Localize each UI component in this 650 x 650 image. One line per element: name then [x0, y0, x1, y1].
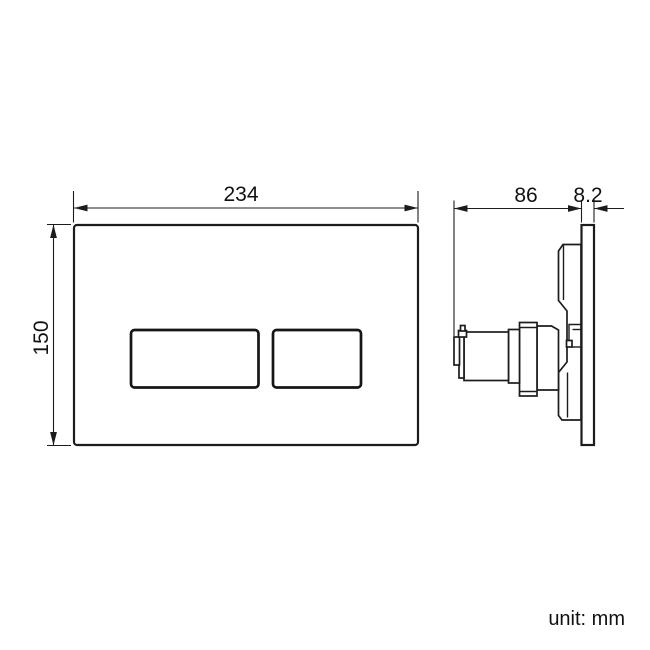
air-hose-nipple-tip — [461, 326, 466, 332]
actuator-assembly — [454, 323, 559, 397]
arrowhead-left-icon — [74, 205, 88, 212]
arrowhead-down-icon — [50, 432, 57, 446]
depth-dimension-label: 86 — [514, 184, 537, 207]
width-dimension: 234 — [74, 183, 419, 223]
arrowhead-right-icon — [405, 205, 419, 212]
width-dimension-label: 234 — [223, 183, 258, 206]
actuator-step-section — [509, 330, 520, 384]
flush-button-small — [273, 330, 361, 388]
technical-drawing-page: 234 150 — [0, 0, 650, 650]
flush-plate-dimension-drawing: 234 150 — [0, 0, 650, 650]
arrowhead-left-icon — [454, 205, 468, 212]
actuator-end-cap-outer — [454, 337, 460, 365]
flush-button-large — [131, 330, 259, 388]
thickness-dimension-label: 8.2 — [573, 184, 602, 207]
front-view — [74, 225, 418, 445]
height-dimension-label: 150 — [30, 320, 53, 355]
arrowhead-up-icon — [50, 225, 57, 239]
actuator-cylinder — [464, 332, 509, 381]
clip-foot — [567, 341, 573, 348]
side-view — [454, 225, 594, 445]
mounting-frame — [559, 245, 582, 421]
flush-plate-side — [582, 225, 595, 445]
unit-note: unit: mm — [470, 608, 625, 631]
actuator-rear-body — [537, 326, 559, 390]
height-dimension: 150 — [30, 225, 71, 446]
actuator-flange — [520, 323, 538, 397]
